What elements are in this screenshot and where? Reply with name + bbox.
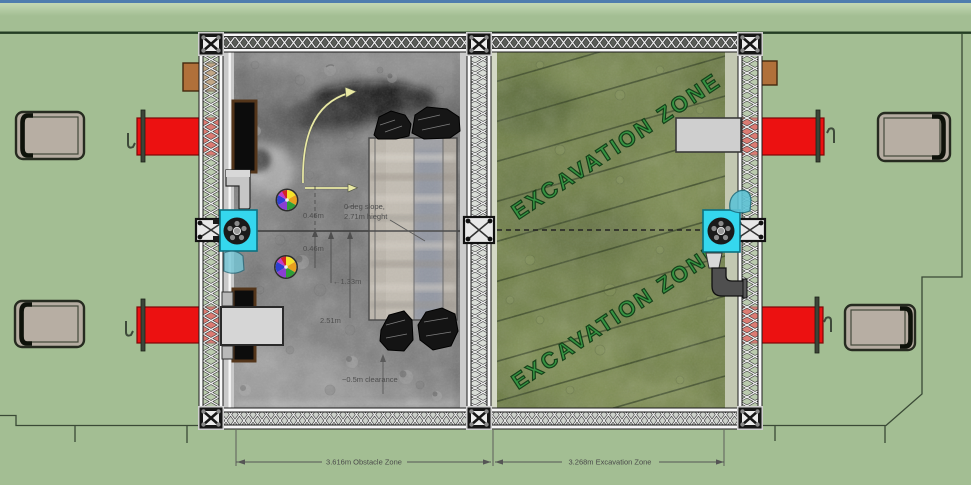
svg-text:←1.33m: ←1.33m (333, 277, 361, 286)
svg-text:3.616m Obstacle Zone: 3.616m Obstacle Zone (326, 458, 402, 467)
svg-text:0.46m: 0.46m (303, 211, 324, 220)
svg-text:3.268m Excavation Zone: 3.268m Excavation Zone (569, 458, 652, 467)
svg-text:2.71m hieght: 2.71m hieght (344, 212, 388, 221)
svg-text:0.46m: 0.46m (303, 244, 324, 253)
svg-text:2.51m: 2.51m (320, 316, 341, 325)
svg-text:0 deg slope,: 0 deg slope, (344, 202, 385, 211)
svg-text:~0.5m clearance: ~0.5m clearance (342, 375, 398, 384)
